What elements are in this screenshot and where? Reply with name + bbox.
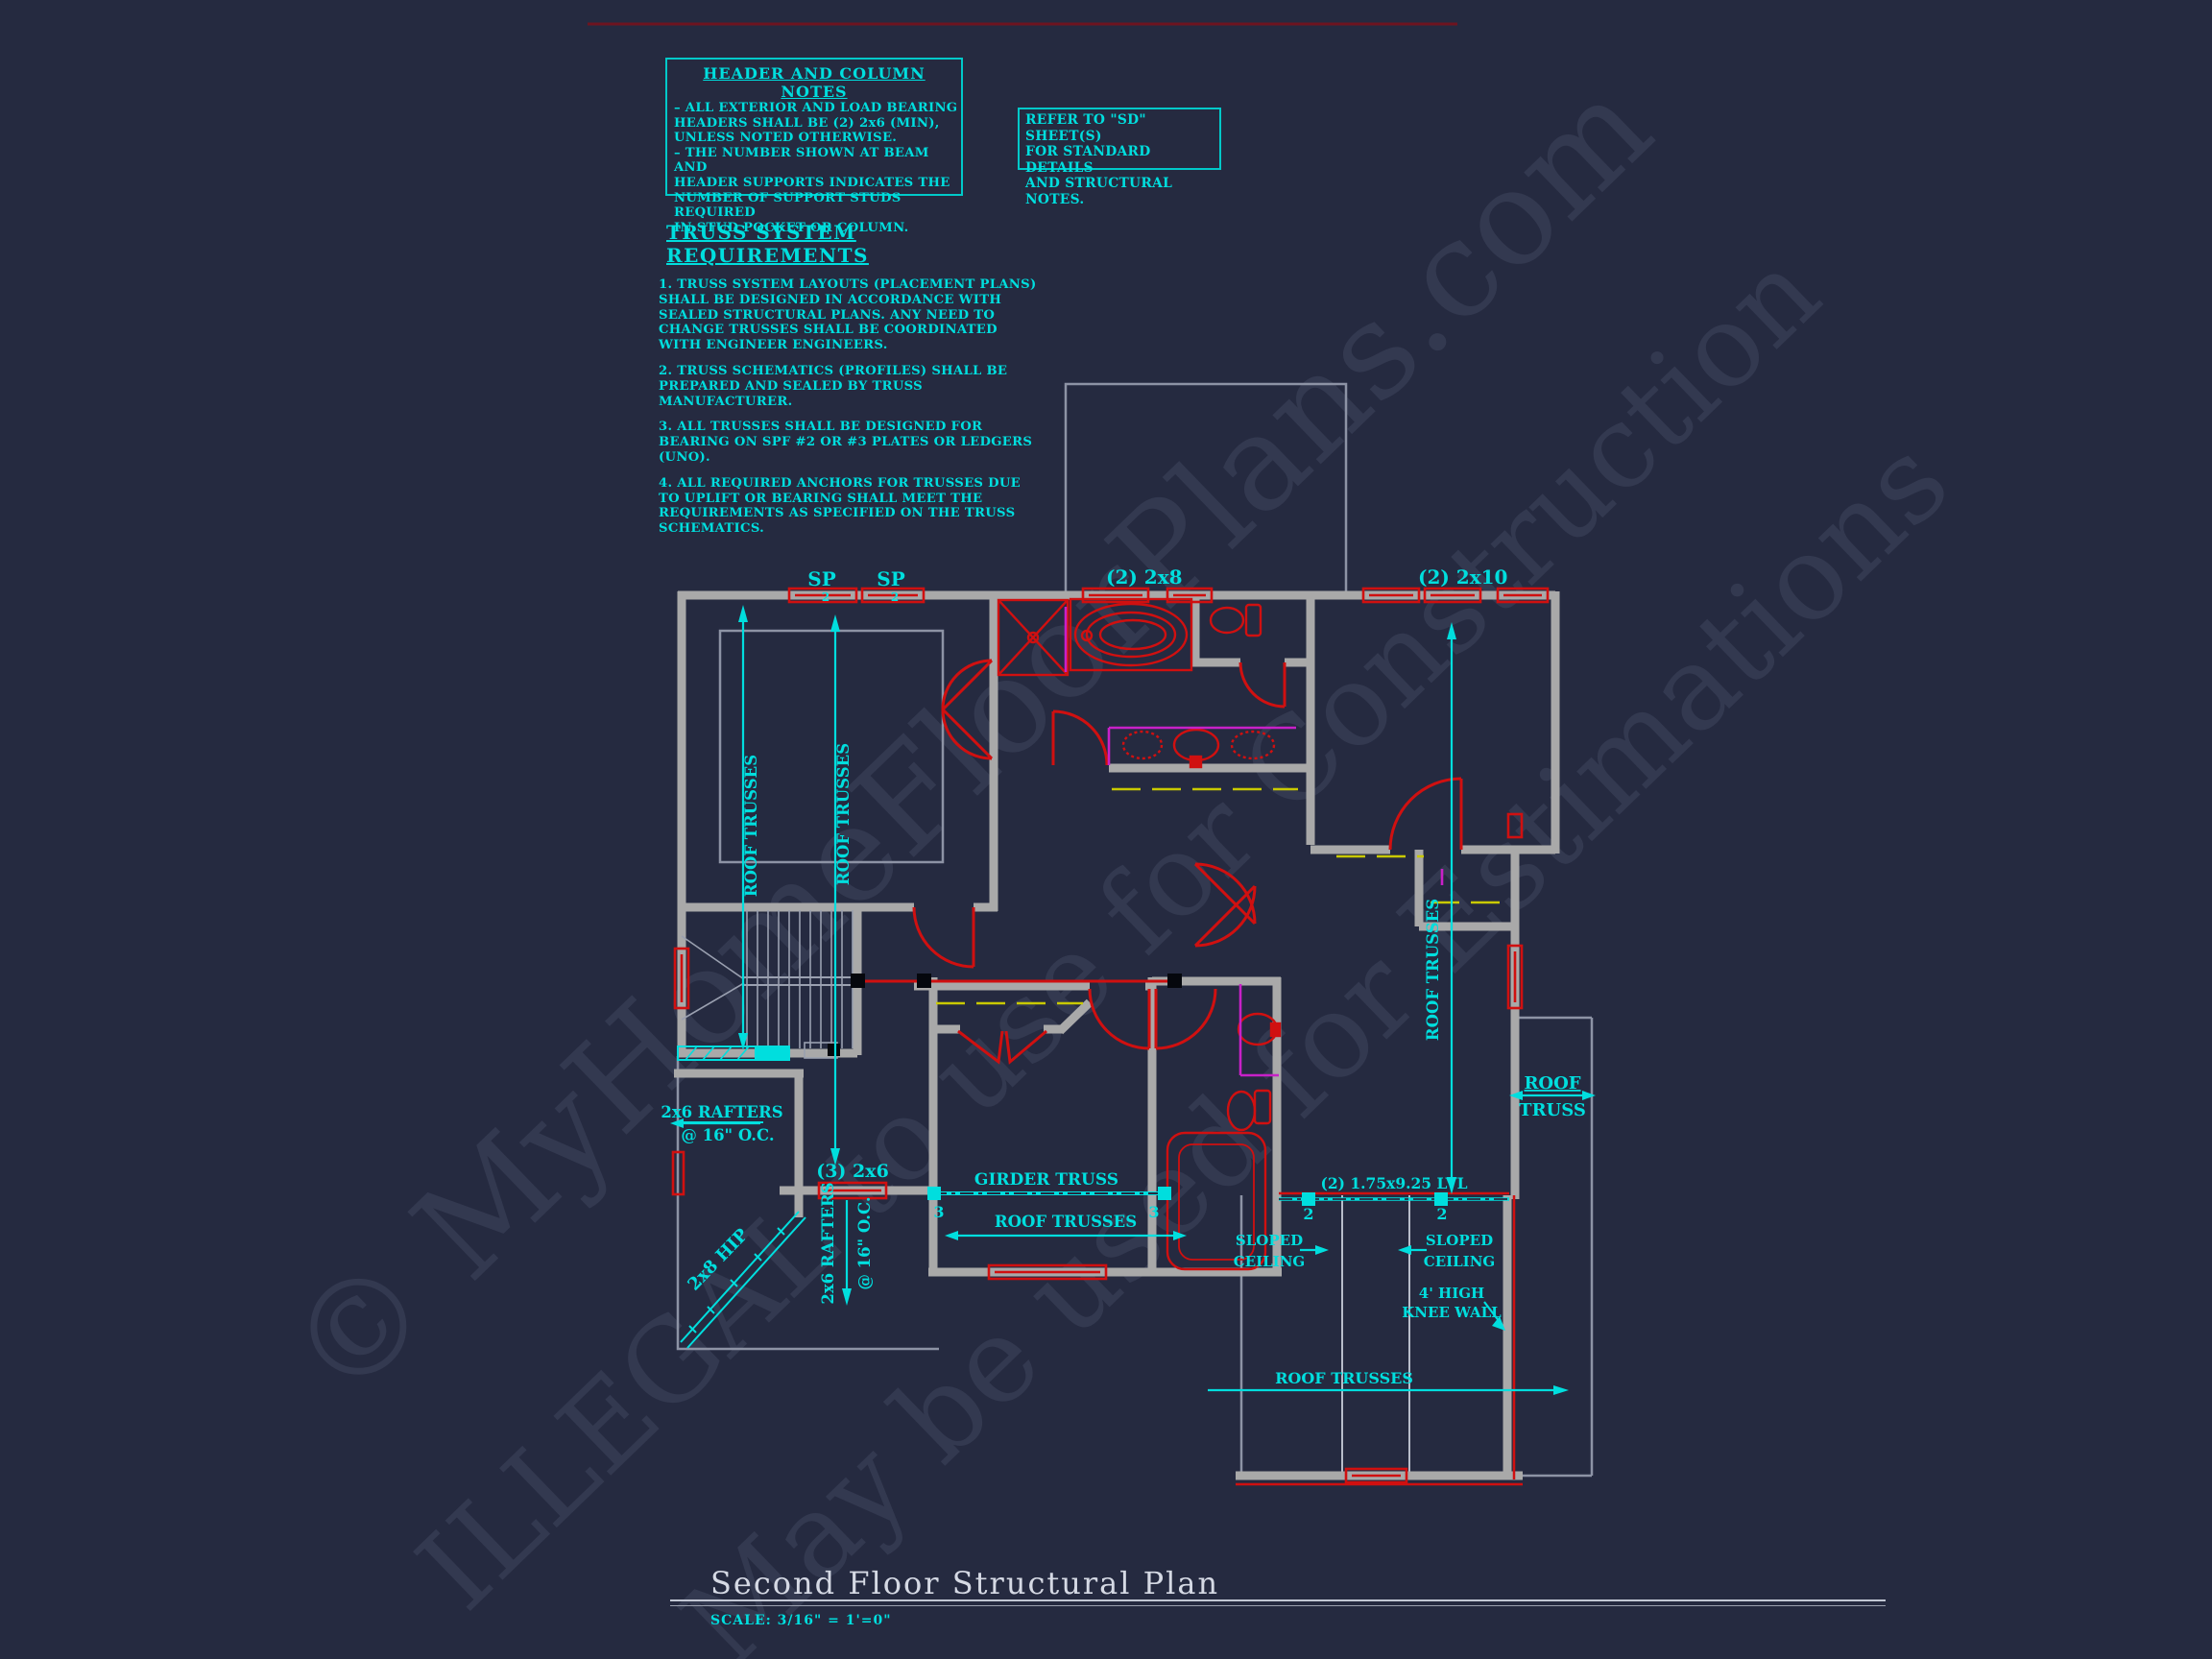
door-arc bbox=[1053, 711, 1107, 765]
three-2x6-label: (3) 2x6 bbox=[816, 1161, 889, 1182]
stud-count-3: 3 bbox=[933, 1203, 944, 1221]
door-arc bbox=[1240, 662, 1285, 707]
title-underline bbox=[670, 1605, 1886, 1606]
window-header bbox=[1346, 1469, 1407, 1482]
stud-count: 2 bbox=[822, 590, 829, 604]
door-bifold bbox=[958, 1031, 1046, 1062]
roof-trusses-label: ROOF TRUSSES bbox=[995, 1213, 1137, 1231]
door-arc bbox=[914, 907, 974, 967]
roof-trusses-label: ROOF TRUSSES bbox=[742, 755, 760, 897]
magenta-lines bbox=[1066, 607, 1442, 1075]
window-header bbox=[1508, 814, 1522, 837]
shower-icon bbox=[998, 600, 1068, 675]
window-header bbox=[675, 949, 688, 1008]
stair-newel-post bbox=[828, 1044, 840, 1056]
knee-wall-label: 4' HIGH bbox=[1419, 1285, 1484, 1302]
roof-truss-label: TRUSS bbox=[1519, 1100, 1586, 1120]
girder-truss-label: GIRDER TRUSS bbox=[974, 1170, 1118, 1190]
door-arc bbox=[943, 661, 992, 709]
title-underline bbox=[670, 1599, 1886, 1601]
roof-trusses-label: ROOF TRUSSES bbox=[1424, 899, 1442, 1041]
stairs bbox=[682, 910, 854, 1058]
toilet-icon bbox=[1211, 605, 1261, 636]
sloped-area-dividers bbox=[1342, 1195, 1409, 1476]
toilet-icon bbox=[1228, 1091, 1270, 1130]
header-label-2x8: (2) 2x8 bbox=[1106, 565, 1183, 589]
stud-count-2: 2 bbox=[1303, 1205, 1313, 1223]
sloped-ceiling-label: SLOPED bbox=[1426, 1232, 1493, 1249]
floor-plan: SP SP 2 2 (2) 2x8 (2) 2x10 ROOF TRUSSES … bbox=[0, 0, 2212, 1659]
sloped-ceiling-label: CEILING bbox=[1234, 1253, 1305, 1270]
drawing-sheet: © MyHomeFloorPlans.com ILLEGAL to use fo… bbox=[0, 0, 2212, 1659]
rafters-label: 2x6 RAFTERS bbox=[661, 1103, 782, 1121]
scale-note: SCALE: 3/16" = 1'=0" bbox=[710, 1613, 892, 1628]
stud-count: 2 bbox=[891, 590, 899, 604]
stud-count-2: 2 bbox=[1436, 1205, 1447, 1223]
roof-trusses-label: ROOF TRUSSES bbox=[834, 743, 853, 885]
door-arc bbox=[1090, 989, 1149, 1048]
door-arc bbox=[1156, 989, 1215, 1048]
vanity-sinks bbox=[1123, 730, 1274, 767]
header-label-2x10: (2) 2x10 bbox=[1418, 565, 1507, 589]
hip-label: 2x8 HIP bbox=[684, 1224, 753, 1294]
roof-truss-label: ROOF bbox=[1524, 1073, 1580, 1094]
sloped-ceiling-label: SLOPED bbox=[1236, 1232, 1303, 1249]
rafters-vertical-label: @ 16" O.C. bbox=[855, 1196, 874, 1289]
door-arc bbox=[943, 709, 992, 758]
rafters-label: @ 16" O.C. bbox=[681, 1126, 774, 1144]
annotations bbox=[670, 605, 1596, 1395]
window-header bbox=[1363, 589, 1419, 602]
bathtub-icon bbox=[1070, 599, 1191, 670]
arrowheads bbox=[670, 605, 1596, 1395]
lvl-label: (2) 1.75x9.25 LVL bbox=[1321, 1174, 1468, 1192]
window-header bbox=[1508, 946, 1522, 1008]
sp-label: SP bbox=[807, 567, 835, 590]
sp-label: SP bbox=[877, 567, 904, 590]
knee-wall-label: KNEE WALL bbox=[1402, 1304, 1502, 1321]
window-header bbox=[1498, 589, 1548, 602]
fixtures bbox=[998, 599, 1280, 1269]
sheet-title: Second Floor Structural Plan bbox=[710, 1565, 1219, 1601]
sloped-ceiling-label: CEILING bbox=[1424, 1253, 1495, 1270]
rafters-vertical-label: 2x6 RAFTERS bbox=[819, 1182, 837, 1304]
window-header bbox=[1425, 589, 1480, 602]
roof-trusses-label: ROOF TRUSSES bbox=[1275, 1369, 1413, 1387]
window-header bbox=[989, 1265, 1106, 1279]
stud-count-3: 3 bbox=[1148, 1203, 1159, 1221]
